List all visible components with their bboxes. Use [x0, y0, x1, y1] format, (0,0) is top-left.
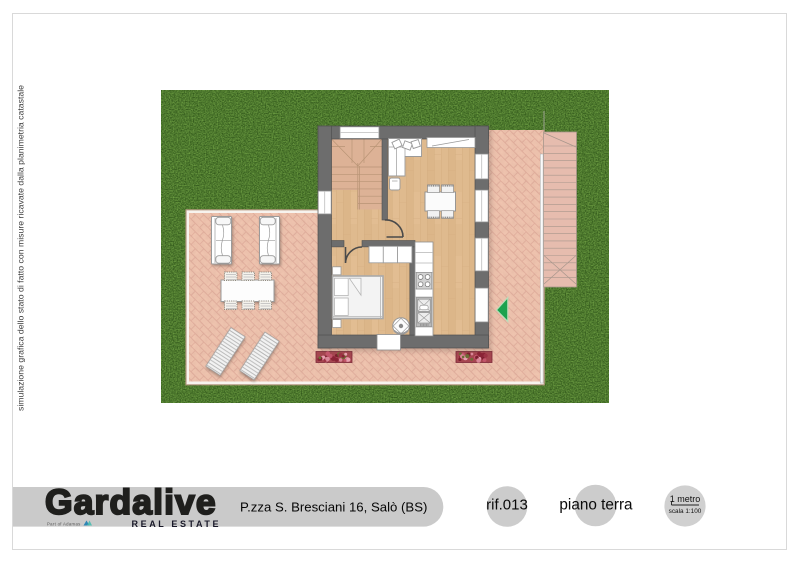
svg-text:scala 1:100: scala 1:100: [669, 508, 702, 515]
svg-text:simulazione grafica dello stat: simulazione grafica dello stato di fatto…: [16, 85, 26, 411]
svg-text:REAL ESTATE: REAL ESTATE: [132, 519, 222, 529]
svg-text:rif.013: rif.013: [486, 497, 528, 514]
svg-text:P.zza S. Bresciani 16, Salò (B: P.zza S. Bresciani 16, Salò (BS): [240, 500, 427, 515]
svg-text:Gardalive: Gardalive: [45, 482, 217, 522]
svg-text:Part of Adamas: Part of Adamas: [47, 522, 81, 527]
svg-text:1 metro: 1 metro: [670, 494, 701, 504]
svg-text:piano terra: piano terra: [559, 497, 633, 514]
